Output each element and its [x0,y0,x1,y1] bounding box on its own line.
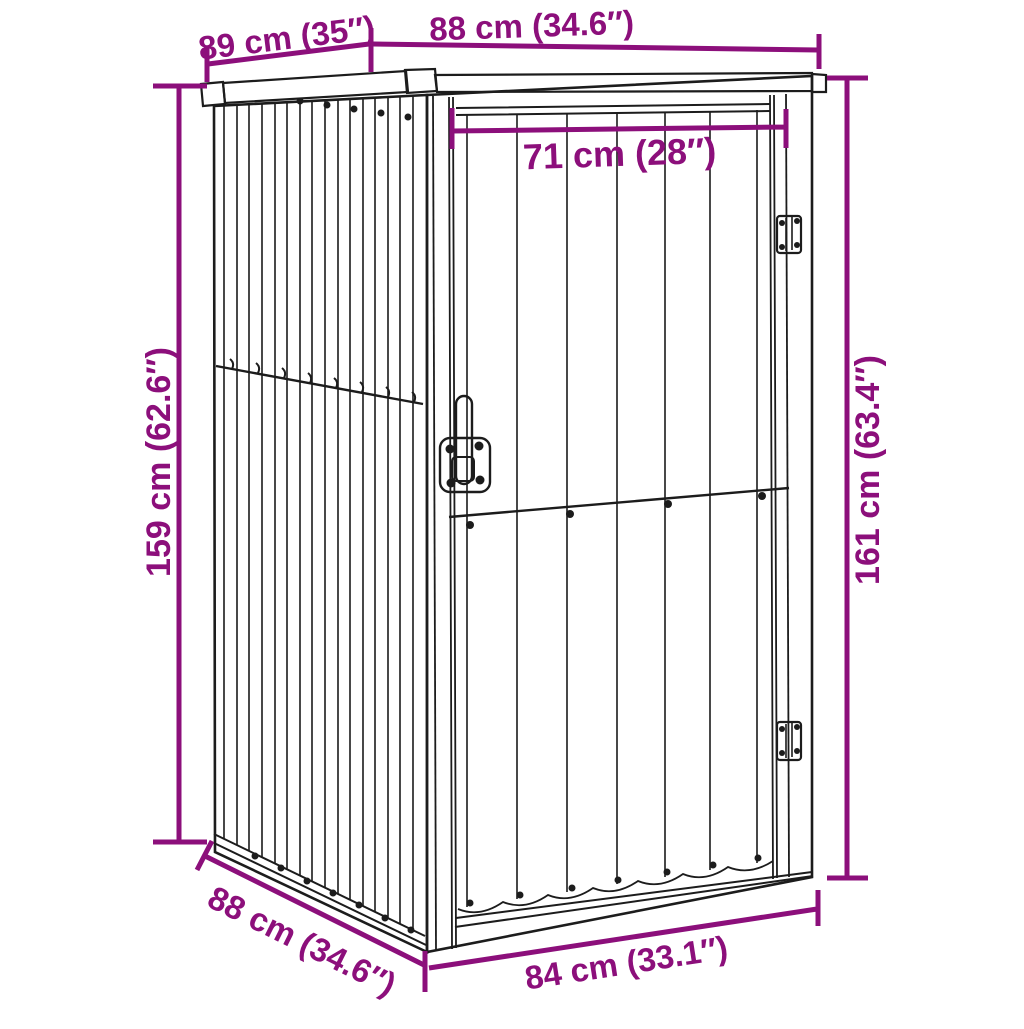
roof-front-fascia [435,73,812,92]
handle-lever [456,396,472,484]
door-bottom-screws [467,855,762,907]
left-height-label: 159 cm (62.6″) [140,347,178,577]
door [449,94,789,949]
right-height-label: 161 cm (63.4″) [849,355,887,585]
door-seam-screws [466,492,766,529]
left-wall-corrugation-lines [224,96,413,930]
door-handle [440,396,490,492]
dim-left-height: 159 cm (62.6″) [140,86,207,842]
shed-dimension-diagram: 89 cm (35″) 88 cm (34.6″) 71 cm (28″) 15… [0,0,1024,1024]
corner-post-inner-edge [433,96,436,950]
left-wall-outline [214,95,427,952]
door-left-jamb [449,97,456,949]
dim-door-width: 71 cm (28″) [452,108,786,177]
roof-width-label: 88 cm (34.6″) [429,3,635,47]
dim-right-height: 161 cm (63.4″) [827,78,887,878]
left-wall [214,95,427,952]
roof-corner-block [405,69,437,93]
roof [201,69,826,106]
door-mid-seam [449,488,789,517]
door-right-edge [770,95,777,879]
dim-floor-width: 84 cm (33.1″) [425,890,818,997]
door-panel-lines [467,110,757,907]
roof-right-end-cap [812,74,826,92]
dimension-diagram-page: 89 cm (35″) 88 cm (34.6″) 71 cm (28″) 15… [0,0,1024,1024]
dim-roof-depth: 89 cm (35″) [196,8,376,82]
dim-roof-width: 88 cm (34.6″) [373,3,819,69]
door-width-label: 71 cm (28″) [522,130,717,178]
shed-drawing [201,69,826,952]
left-wall-mid-seam [216,366,423,404]
door-top-rail [456,104,770,115]
dim-floor-depth: 88 cm (34.6″) [197,841,424,1003]
door-hinge-top [777,216,801,253]
roof-depth-label: 89 cm (35″) [196,8,376,66]
front-wall [427,76,813,952]
